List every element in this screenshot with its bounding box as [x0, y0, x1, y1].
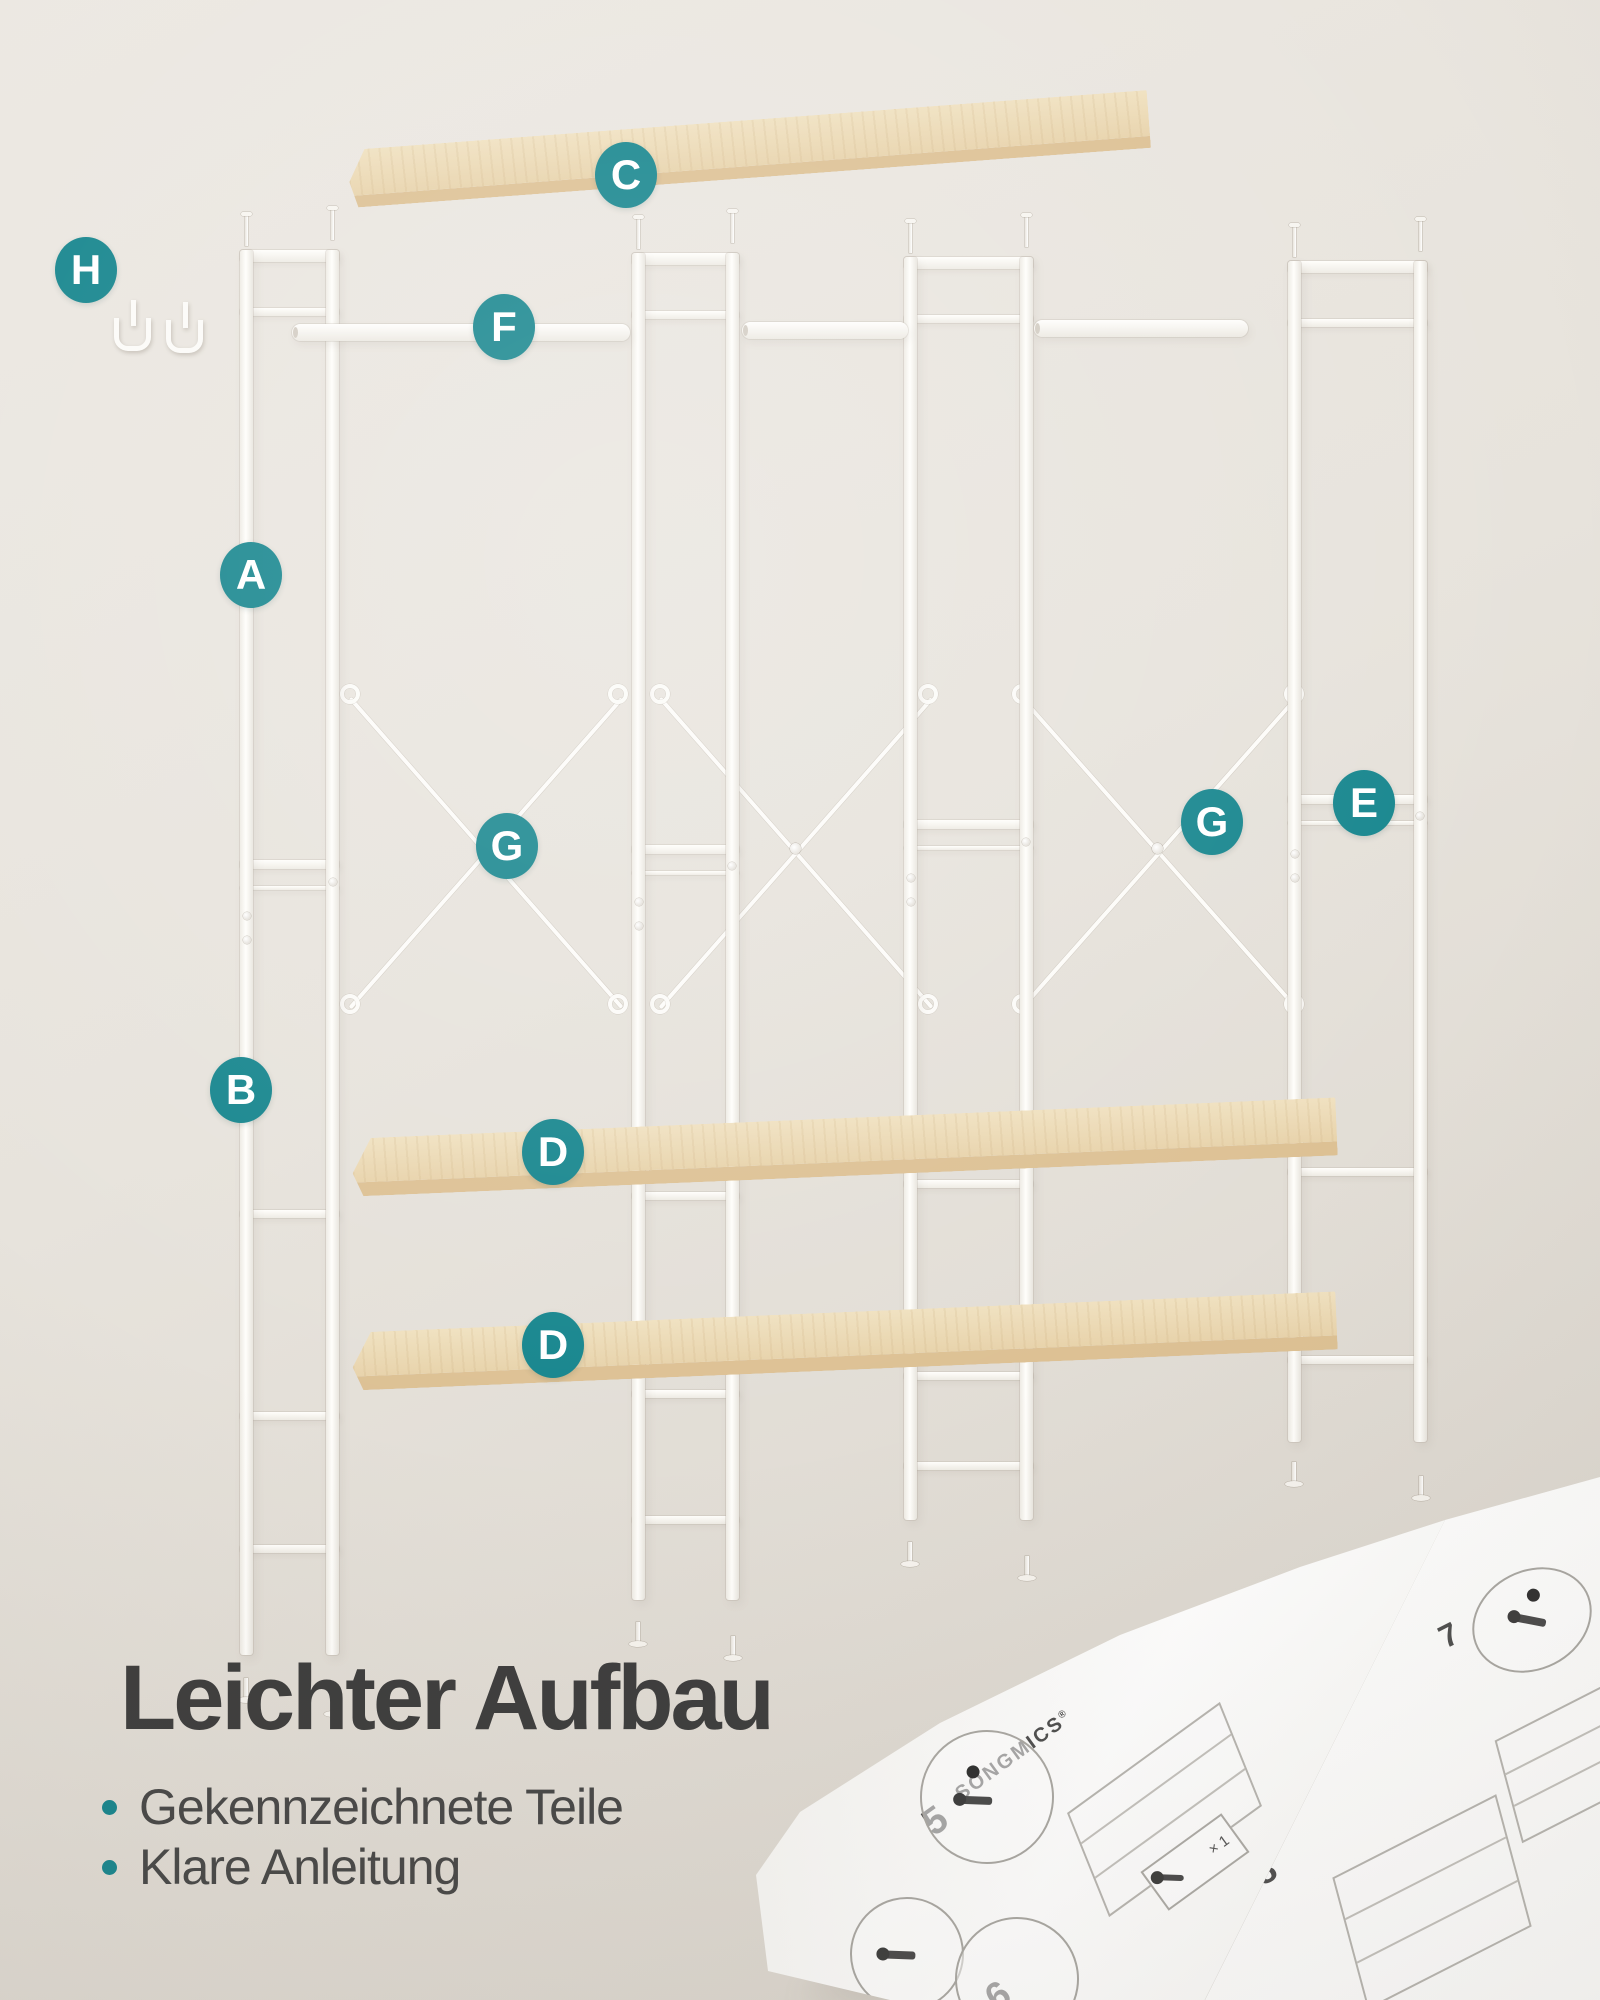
screw-icon: [885, 1951, 915, 1960]
screw-icon: [1160, 1874, 1184, 1881]
step-dot-icon: [964, 1763, 982, 1781]
manual-step-number: 7: [1433, 1615, 1466, 1656]
step-dot-icon: [1525, 1586, 1542, 1603]
screw-icon: [1516, 1614, 1547, 1628]
manual-frame-diagram: [1495, 1671, 1600, 1844]
product-exploded-diagram: A B C D D E F G G H Leichter Aufbau Geke…: [0, 0, 1600, 2000]
manual-frame-diagram: [1332, 1794, 1531, 2000]
manual-callout-circle: [1454, 1547, 1600, 1692]
instruction-manual: SONGMICS® 5 × 1 6: [740, 1455, 1600, 2000]
screw-icon: [962, 1796, 992, 1805]
